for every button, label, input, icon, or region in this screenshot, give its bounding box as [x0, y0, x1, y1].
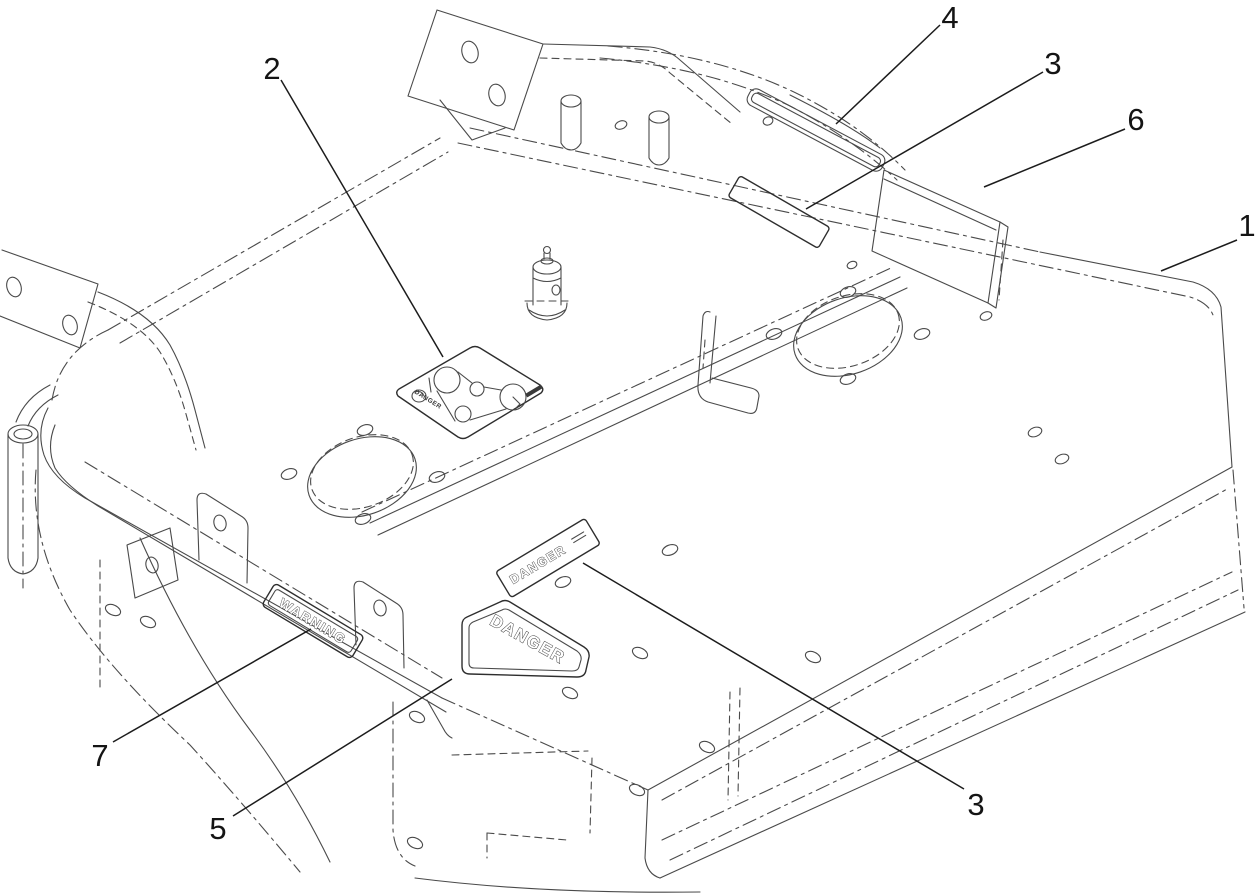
front-center-skirt [393, 700, 700, 892]
mower-deck-parts-diagram: DANGER WARNING DANGER [0, 0, 1258, 894]
callout-3-bottom-label: 3 [967, 787, 984, 822]
callout-5-label: 5 [209, 811, 226, 846]
deck-pin-right [649, 111, 669, 165]
leader-line-4 [836, 25, 940, 124]
decal-part-number-block [525, 385, 542, 398]
deck-holes [406, 119, 1070, 851]
latch-bracket [698, 312, 759, 414]
danger-pentagon-text: DANGER [487, 611, 569, 668]
leader-line-6 [984, 129, 1125, 187]
leader-line-5 [233, 679, 452, 816]
rear-seal-strip [745, 86, 888, 173]
callout-labels: 1 2 3 3 4 5 6 7 [91, 0, 1255, 846]
parts-diagram-page: DANGER WARNING DANGER [0, 0, 1258, 894]
top-hanger-bracket [408, 10, 905, 180]
blank-decal-top [728, 176, 830, 249]
leader-line-1 [1161, 240, 1237, 271]
callout-4-label: 4 [941, 0, 958, 35]
callout-6-label: 6 [1127, 102, 1144, 137]
danger-strip-decal: DANGER [496, 518, 601, 597]
left-skirt [35, 470, 330, 872]
leader-line-2 [281, 80, 443, 357]
callout-3-top-label: 3 [1044, 46, 1061, 81]
leader-lines [113, 25, 1237, 816]
deck-shell [41, 128, 1232, 790]
belt-routing-decal: DANGER [397, 347, 543, 439]
callout-1-label: 1 [1238, 208, 1255, 243]
spacer-bushing [525, 247, 569, 321]
roller-tube [8, 385, 58, 588]
callout-7-label: 7 [91, 738, 108, 773]
front-skirt [645, 470, 1245, 878]
right-standing-plate [872, 170, 1008, 322]
deck-pin-left [561, 95, 581, 150]
danger-strip-text: DANGER [507, 542, 568, 587]
spindle-opening-right [765, 281, 931, 391]
callout-2-label: 2 [263, 51, 280, 86]
danger-pentagon-decal: DANGER [462, 601, 589, 678]
leader-line-3-bottom [583, 563, 964, 789]
leader-line-7 [113, 629, 311, 742]
front-rail-gussets [197, 493, 404, 668]
